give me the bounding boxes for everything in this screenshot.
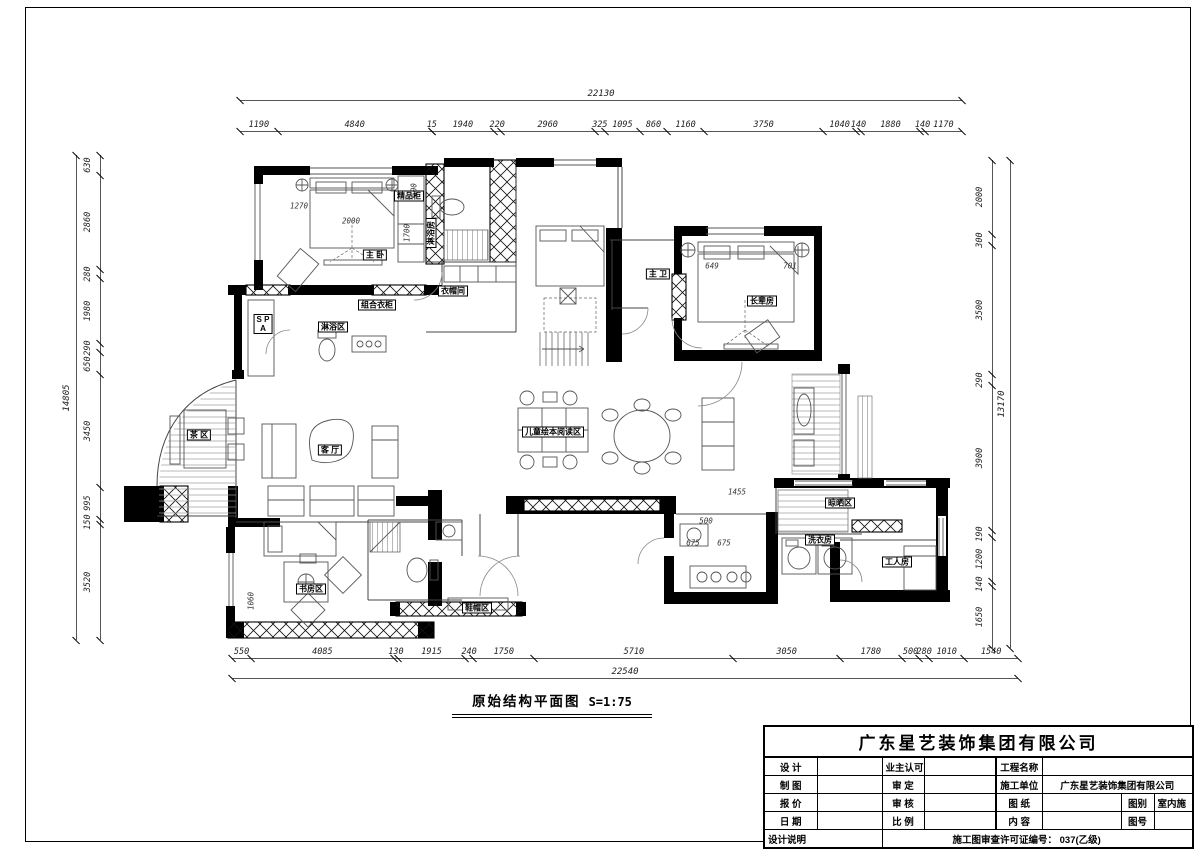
label-date: 日 期 (764, 812, 817, 830)
dashed-lines (330, 220, 768, 346)
label-builder: 施工单位 (996, 776, 1042, 794)
value-scale (924, 812, 996, 830)
caption-scale: S=1:75 (589, 695, 632, 709)
value-quotation (817, 794, 882, 812)
value-approval (924, 776, 996, 794)
drawing-sheet: 1190484015194022029603251095860116037501… (0, 0, 1200, 848)
label-content: 内 容 (996, 812, 1042, 830)
label-category: 图别 (1121, 794, 1154, 812)
floorplan-drawing (0, 0, 1200, 848)
value-owner-ok (924, 757, 996, 776)
value-content (1042, 812, 1121, 830)
label-owner-ok: 业主认可 (882, 757, 924, 776)
value-category: 室内施 (1154, 794, 1193, 812)
value-design (817, 757, 882, 776)
value-project-name (1042, 757, 1193, 776)
label-review: 审 核 (882, 794, 924, 812)
value-builder: 广东星艺装饰集团有限公司 (1042, 776, 1193, 794)
titleblock-company: 广东星艺装饰集团有限公司 (764, 726, 1193, 757)
drawing-caption: 原始结构平面图S=1:75 (452, 690, 652, 718)
permit-text: 施工图审查许可证编号： 037(乙级) (882, 830, 1193, 849)
value-date (817, 812, 882, 830)
label-design: 设 计 (764, 757, 817, 776)
value-drawing (1042, 794, 1121, 812)
label-drafting: 制 图 (764, 776, 817, 794)
label-quotation: 报 价 (764, 794, 817, 812)
value-review (924, 794, 996, 812)
label-approval: 审 定 (882, 776, 924, 794)
title-block: 广东星艺装饰集团有限公司 设 计 业主认可 工程名称 制 图 审 定 施工单位 … (763, 725, 1194, 849)
value-number (1154, 812, 1193, 830)
caption-title: 原始结构平面图 (472, 694, 581, 709)
label-scale: 比 例 (882, 812, 924, 830)
label-number: 图号 (1121, 812, 1154, 830)
label-drawing: 图 纸 (996, 794, 1042, 812)
label-notes: 设计说明 (764, 830, 882, 849)
value-drafting (817, 776, 882, 794)
label-project-name: 工程名称 (996, 757, 1042, 776)
